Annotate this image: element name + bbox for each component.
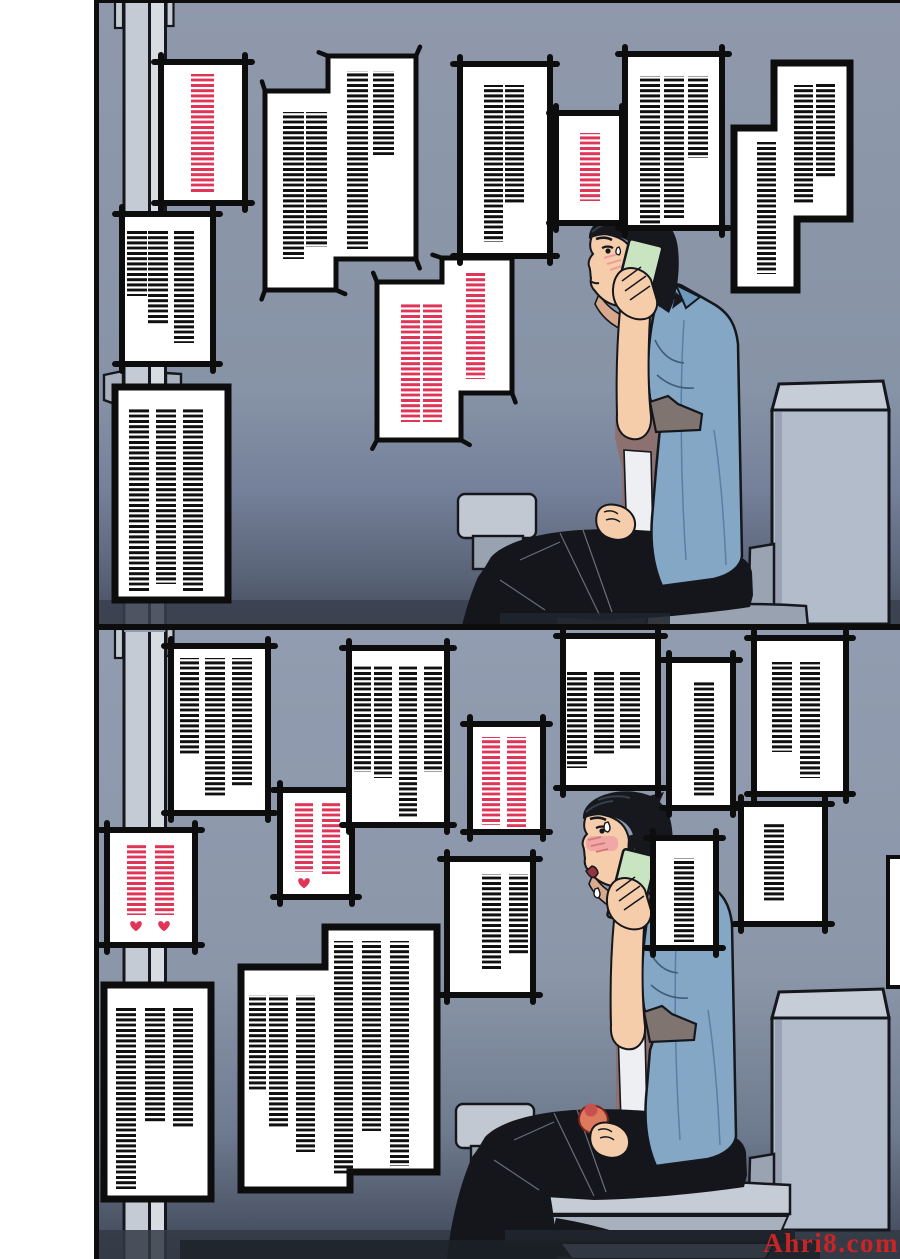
svg-text:Ahri8.com: Ahri8.com — [763, 1228, 899, 1258]
